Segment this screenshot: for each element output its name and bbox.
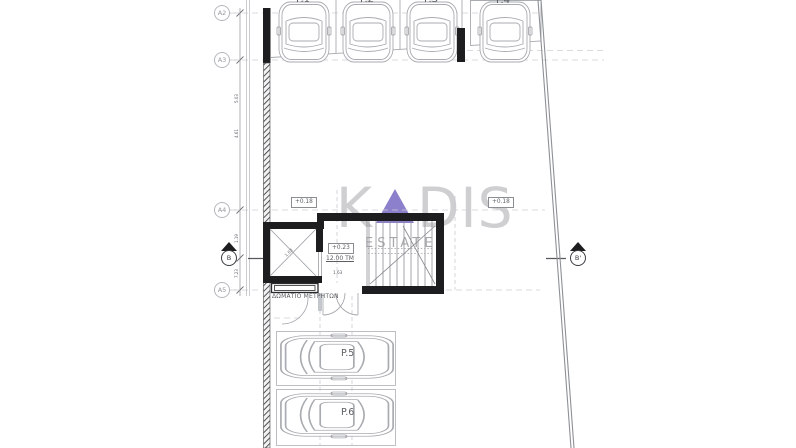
- dimension-line: [230, 0, 250, 296]
- car-icons-bottom: [281, 334, 393, 438]
- car-icons-top: [277, 2, 532, 62]
- stairs: [367, 221, 435, 286]
- meter-cabinet: [272, 284, 319, 293]
- core-walls: [263, 213, 444, 294]
- elevator-shaft: [270, 229, 322, 276]
- floor-plan-canvas: K DIS ESTATES: [0, 0, 796, 448]
- plan-linework: [0, 0, 796, 448]
- plot-boundary-line: [538, 0, 574, 448]
